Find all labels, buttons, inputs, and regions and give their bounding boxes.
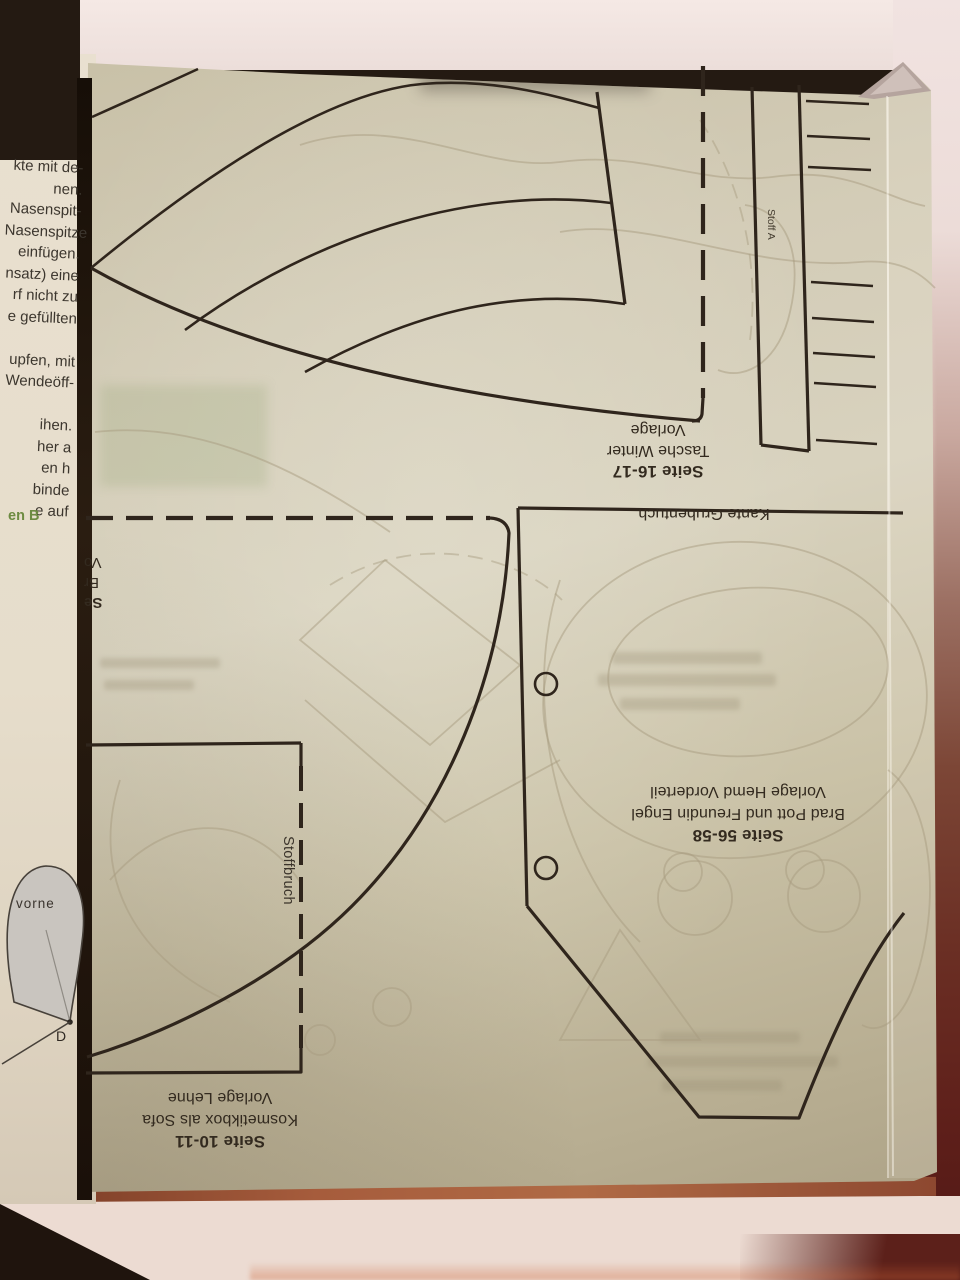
label-stoffbruch: Stoffbruch xyxy=(276,836,296,948)
folded-corner xyxy=(858,62,931,99)
text-line: binde xyxy=(0,477,70,502)
label-line: Se xyxy=(84,592,124,612)
text-line: kte mit de- xyxy=(7,155,84,180)
fold-crease-line xyxy=(887,96,893,1176)
label-line: Kosmetikbox als Sofa xyxy=(100,1108,340,1130)
label-line: Brad Pott und Freundin Engel xyxy=(583,802,893,824)
text-line: Nasenspitze xyxy=(4,219,81,244)
label-line: Vorlage Hemd Vorderteil xyxy=(583,780,893,802)
text-line xyxy=(0,391,74,416)
label-line: Seite 10-11 xyxy=(100,1130,340,1152)
label-line: Vo xyxy=(84,552,124,572)
point-d-label: D xyxy=(56,1028,66,1044)
label-tasche-winter: Seite 16-17 Tasche Winter Vorlage xyxy=(553,414,763,482)
text-line: en h xyxy=(0,455,71,480)
label-kante-grubentuch: Kante Grubentuch xyxy=(598,498,810,522)
text-line: e gefüllten xyxy=(1,305,78,330)
piece-tasche-winter xyxy=(91,66,703,421)
label-hemd-vorderteil: Seite 56-58 Brad Pott und Freundin Engel… xyxy=(583,770,893,846)
text-line: ihen. xyxy=(0,412,73,437)
showthrough-artwork xyxy=(95,120,938,1055)
label-line: Seite 16-17 xyxy=(553,461,763,482)
label-line: Vorlage Lehne xyxy=(100,1086,340,1108)
text-line: Nasenspit- xyxy=(5,197,82,222)
text-line: her a xyxy=(0,434,72,459)
text-line: Wendeöff- xyxy=(0,369,75,394)
label-line: Seite 56-58 xyxy=(583,824,893,846)
label-line: Vorlage xyxy=(553,419,763,440)
label-partial-cutoff: Se Br Vo xyxy=(84,548,124,612)
label-line: Tasche Winter xyxy=(553,440,763,461)
piece-middle-arc xyxy=(86,518,509,1057)
label-stoff-a: Stoff A xyxy=(763,209,777,269)
text-line: rf nicht zu xyxy=(1,283,78,308)
button-mark xyxy=(535,857,557,879)
photographed-magazine-spread: kte mit de- nen. Nasenspit- Nasenspitze … xyxy=(0,0,960,1280)
vorne-label: vorne xyxy=(16,896,55,911)
green-note-text: en B xyxy=(8,508,39,524)
label-kosmetikbox-sofa: Seite 10-11 Kosmetikbox als Sofa Vorlage… xyxy=(100,1076,340,1152)
label-line: Br xyxy=(84,572,124,592)
piece-sofa-lehne xyxy=(86,743,301,1073)
